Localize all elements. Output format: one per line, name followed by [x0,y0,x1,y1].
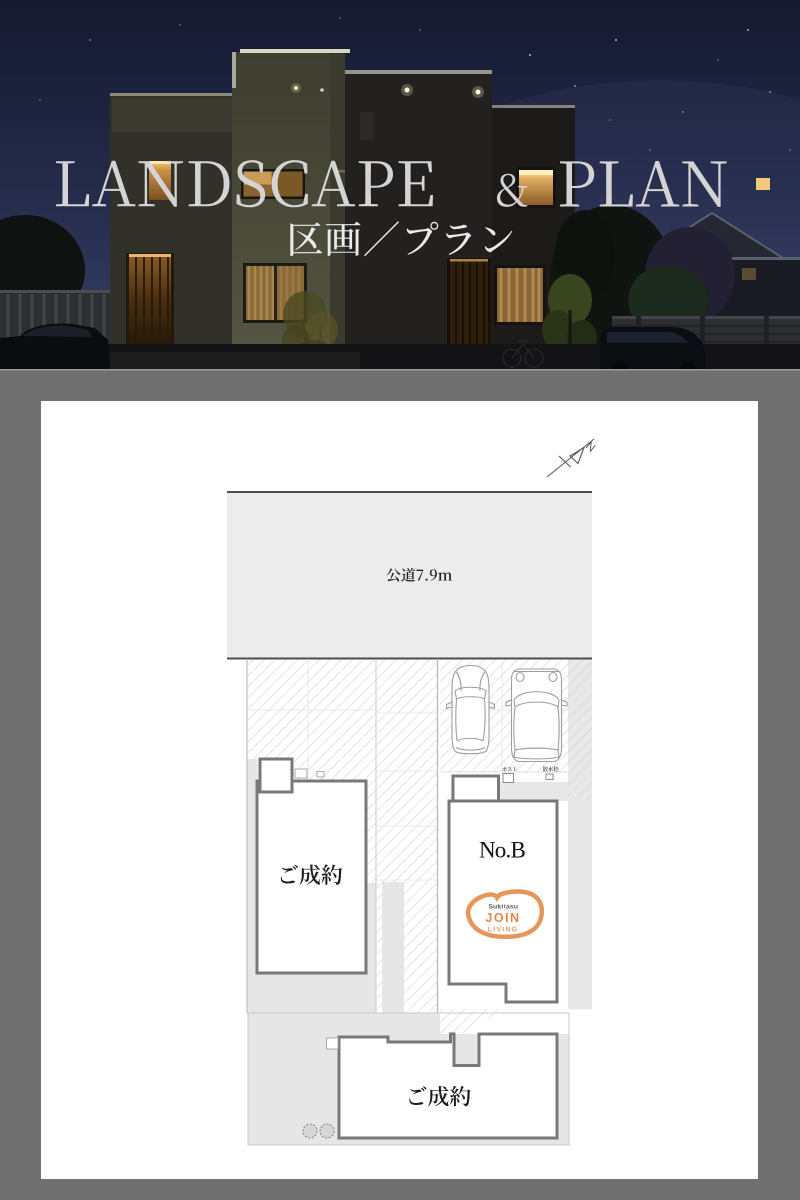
svg-text:No.B: No.B [479,838,525,863]
svg-text:LIVING: LIVING [488,927,519,934]
svg-text:JOIN: JOIN [485,911,520,925]
svg-text:Sukitasu: Sukitasu [488,904,518,911]
